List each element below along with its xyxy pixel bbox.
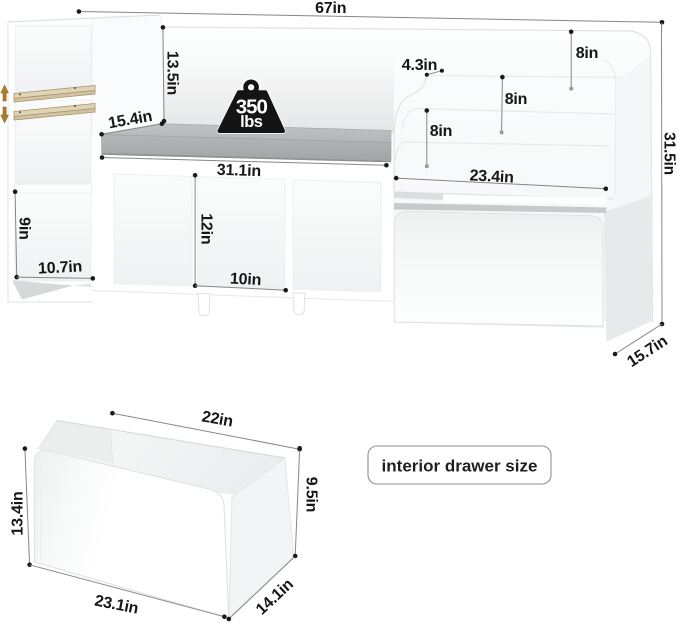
svg-text:12in: 12in <box>198 213 215 244</box>
svg-text:31.1in: 31.1in <box>216 162 261 181</box>
svg-text:lbs: lbs <box>240 113 263 131</box>
svg-text:31.5in: 31.5in <box>661 132 678 175</box>
svg-text:8in: 8in <box>576 45 599 62</box>
svg-text:13.4in: 13.4in <box>9 491 26 535</box>
svg-text:23.4in: 23.4in <box>469 167 514 186</box>
svg-text:8in: 8in <box>505 91 528 108</box>
svg-text:interior drawer size: interior drawer size <box>382 457 538 476</box>
svg-text:9in: 9in <box>16 217 33 240</box>
svg-text:67in: 67in <box>315 0 346 17</box>
svg-text:9.5in: 9.5in <box>303 477 320 512</box>
svg-text:4.3in: 4.3in <box>402 57 437 74</box>
svg-text:10.7in: 10.7in <box>38 258 83 277</box>
svg-text:10in: 10in <box>230 271 262 290</box>
svg-text:8in: 8in <box>430 123 453 140</box>
svg-text:13.5in: 13.5in <box>164 51 181 95</box>
